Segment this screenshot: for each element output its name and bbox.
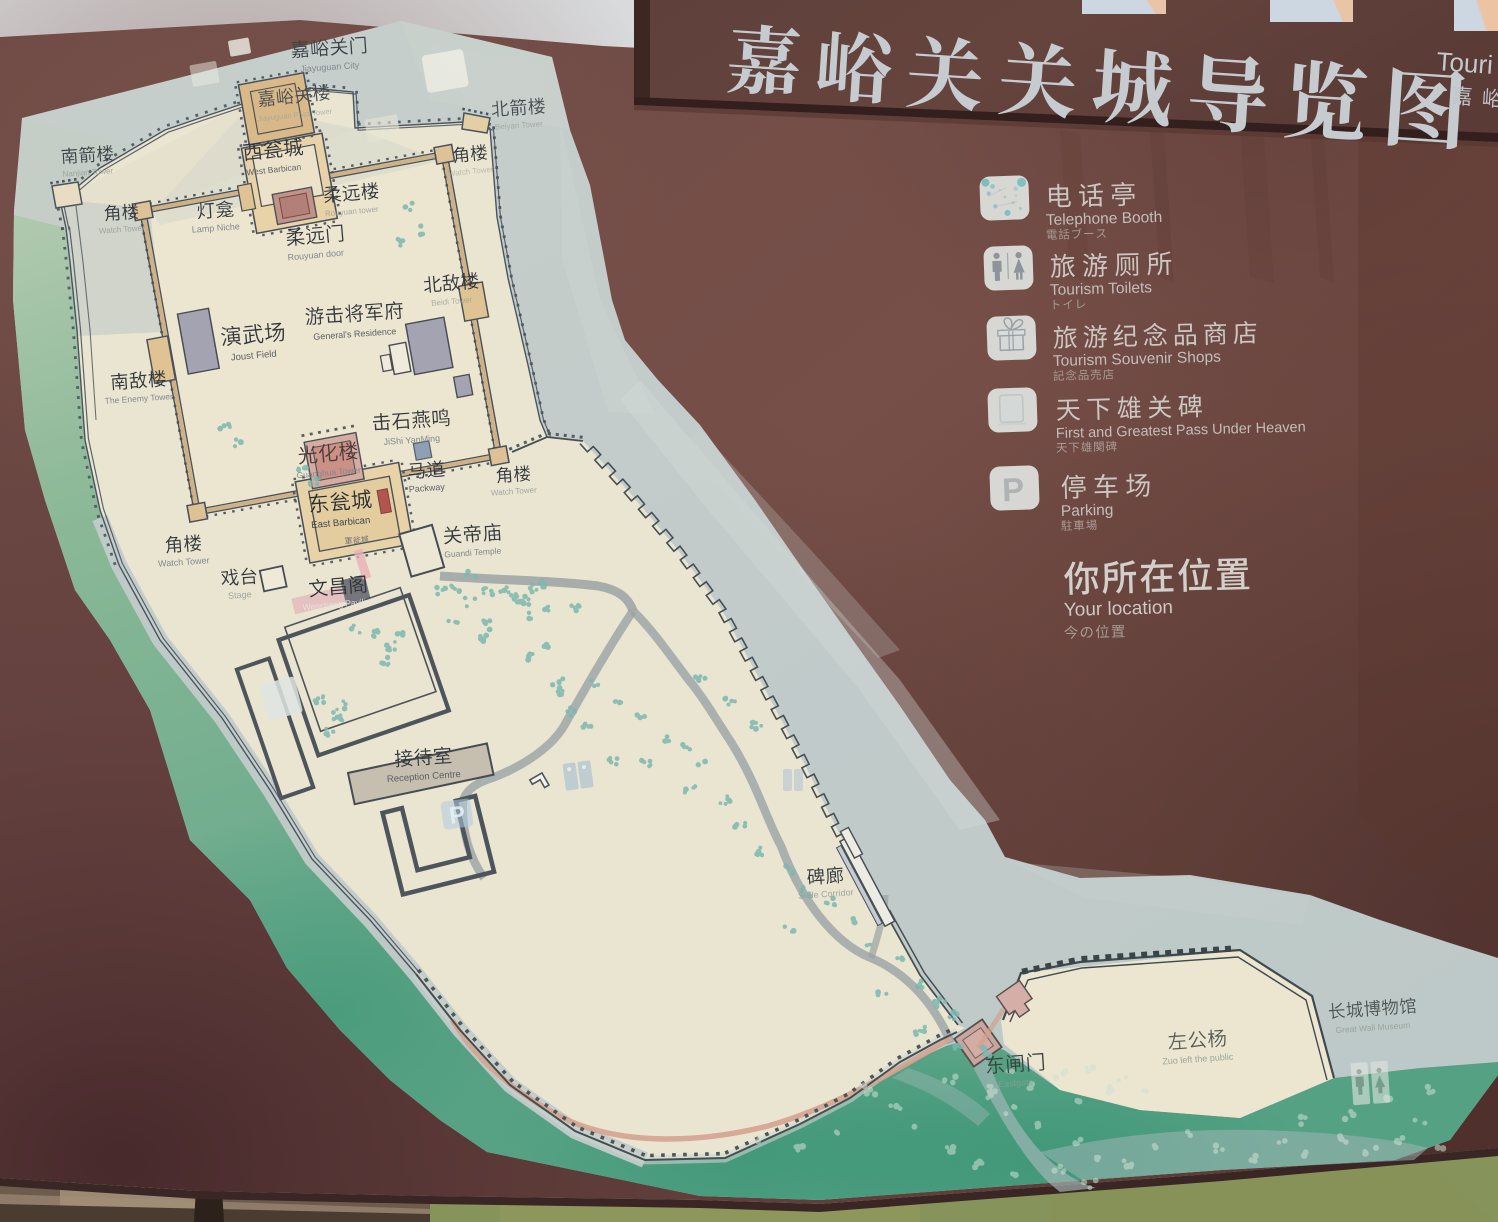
svg-text:Tourism Toilets: Tourism Toilets	[1050, 279, 1153, 299]
svg-text:Telephone Booth: Telephone Booth	[1046, 209, 1163, 229]
svg-text:Parking: Parking	[1061, 502, 1114, 520]
svg-text:Your location: Your location	[1064, 597, 1174, 621]
svg-text:P: P	[1001, 471, 1024, 509]
svg-text:Touri: Touri	[1436, 46, 1494, 80]
svg-text:Stage: Stage	[228, 589, 252, 601]
